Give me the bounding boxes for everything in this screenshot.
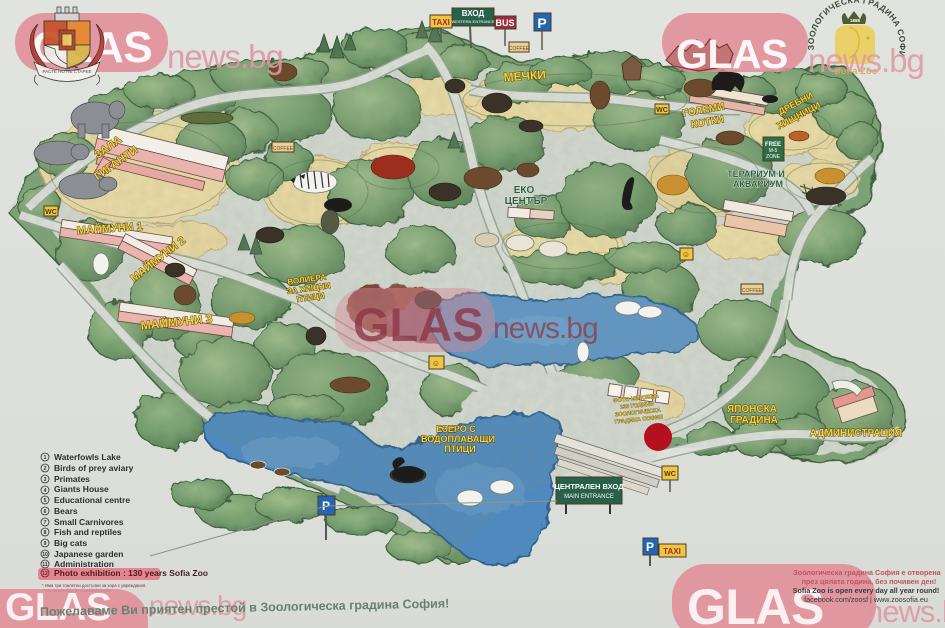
svg-text:P: P bbox=[537, 15, 546, 31]
svg-text:1: 1 bbox=[44, 455, 47, 461]
svg-text:АКВАРИУМ: АКВАРИУМ bbox=[733, 179, 783, 189]
svg-text:7: 7 bbox=[44, 520, 47, 526]
svg-text:COFFEE: COFFEE bbox=[273, 146, 294, 152]
svg-text:TAXI: TAXI bbox=[432, 18, 450, 27]
svg-text:6: 6 bbox=[44, 509, 47, 515]
svg-text:ПТИЦИ: ПТИЦИ bbox=[444, 444, 475, 454]
svg-text:Primates: Primates bbox=[54, 474, 90, 484]
svg-text:ЕКО: ЕКО bbox=[514, 185, 535, 196]
svg-text:BUS: BUS bbox=[495, 18, 514, 28]
svg-text:WC: WC bbox=[656, 107, 668, 114]
svg-text:2: 2 bbox=[44, 466, 47, 472]
svg-text:COFFEE: COFFEE bbox=[509, 46, 530, 52]
svg-text:ВХОД: ВХОД bbox=[462, 9, 485, 18]
svg-text:GLAS: GLAS bbox=[676, 31, 788, 77]
svg-text:WESTERN ENTRANCE: WESTERN ENTRANCE bbox=[451, 19, 494, 24]
svg-text:Photo exhibition : 130 years S: Photo exhibition : 130 years Sofia Zoo bbox=[54, 568, 208, 578]
svg-text:9: 9 bbox=[44, 541, 47, 547]
svg-text:през цялата година, без почиве: през цялата година, без почивен ден! bbox=[802, 577, 937, 586]
svg-text:5: 5 bbox=[44, 498, 47, 504]
svg-text:news.bg: news.bg bbox=[808, 42, 924, 79]
svg-text:TAXI: TAXI bbox=[663, 547, 681, 556]
svg-text:12: 12 bbox=[42, 571, 48, 577]
svg-text:Japanese garden: Japanese garden bbox=[54, 549, 123, 559]
svg-text:GLAS: GLAS bbox=[353, 298, 484, 351]
svg-text:☺: ☺ bbox=[432, 359, 440, 368]
svg-text:10: 10 bbox=[42, 552, 48, 558]
svg-text:Small Carnivores: Small Carnivores bbox=[54, 517, 124, 527]
svg-text:WC: WC bbox=[664, 471, 676, 478]
svg-text:11: 11 bbox=[42, 562, 48, 568]
svg-text:РАСТЕ НО НЕ СТАРЕЕ: РАСТЕ НО НЕ СТАРЕЕ bbox=[43, 69, 92, 74]
svg-text:☺: ☺ bbox=[682, 250, 690, 259]
svg-text:ТЕРАРИУМ И: ТЕРАРИУМ И bbox=[727, 169, 785, 179]
svg-text:Big cats: Big cats bbox=[54, 538, 87, 548]
svg-text:ЕЗЕРО С: ЕЗЕРО С bbox=[436, 424, 476, 434]
svg-text:8: 8 bbox=[44, 530, 47, 536]
svg-text:Waterfowls Lake: Waterfowls Lake bbox=[54, 452, 121, 462]
svg-text:Зоологическа градина София е о: Зоологическа градина София е отворена bbox=[793, 568, 941, 577]
svg-text:MAIN ENTRANCE: MAIN ENTRANCE bbox=[564, 494, 614, 500]
svg-text:ZONE: ZONE bbox=[766, 154, 781, 160]
svg-text:COFFEE: COFFEE bbox=[742, 288, 763, 294]
svg-text:news.bg: news.bg bbox=[167, 38, 283, 75]
svg-text:МЕЧКИ: МЕЧКИ bbox=[503, 68, 546, 85]
svg-text:Giants House: Giants House bbox=[54, 484, 109, 494]
svg-text:ГРАДИНА: ГРАДИНА bbox=[730, 415, 778, 426]
svg-text:P: P bbox=[646, 540, 654, 554]
svg-text:АДМИНИСТРАЦИЯ: АДМИНИСТРАЦИЯ bbox=[810, 428, 902, 439]
svg-text:ЯПОНСКА: ЯПОНСКА bbox=[727, 404, 777, 415]
svg-text:Sofia Zoo is open every day al: Sofia Zoo is open every day all year rou… bbox=[793, 586, 940, 595]
svg-text:Bears: Bears bbox=[54, 506, 78, 516]
svg-text:WC: WC bbox=[45, 209, 57, 216]
svg-text:news.bg: news.bg bbox=[493, 312, 598, 345]
svg-text:facebook.com/zoosf | www.zoo: facebook.com/zoosf | www.zoosofia.eu bbox=[804, 595, 928, 604]
svg-text:ЦЕНТРАЛЕН ВХОД: ЦЕНТРАЛЕН ВХОД bbox=[554, 482, 624, 491]
svg-text:ЦЕНТЪР: ЦЕНТЪР bbox=[505, 196, 548, 207]
svg-text:Fish and reptiles: Fish and reptiles bbox=[54, 527, 122, 537]
svg-text:Birds of prey aviary: Birds of prey aviary bbox=[54, 463, 134, 473]
svg-text:3: 3 bbox=[44, 477, 47, 483]
svg-text:4: 4 bbox=[44, 488, 47, 494]
svg-text:Educational centre: Educational centre bbox=[54, 495, 130, 505]
svg-text:1888: 1888 bbox=[850, 18, 861, 23]
svg-text:ВОДОПЛАВАЩИ: ВОДОПЛАВАЩИ bbox=[421, 434, 495, 444]
